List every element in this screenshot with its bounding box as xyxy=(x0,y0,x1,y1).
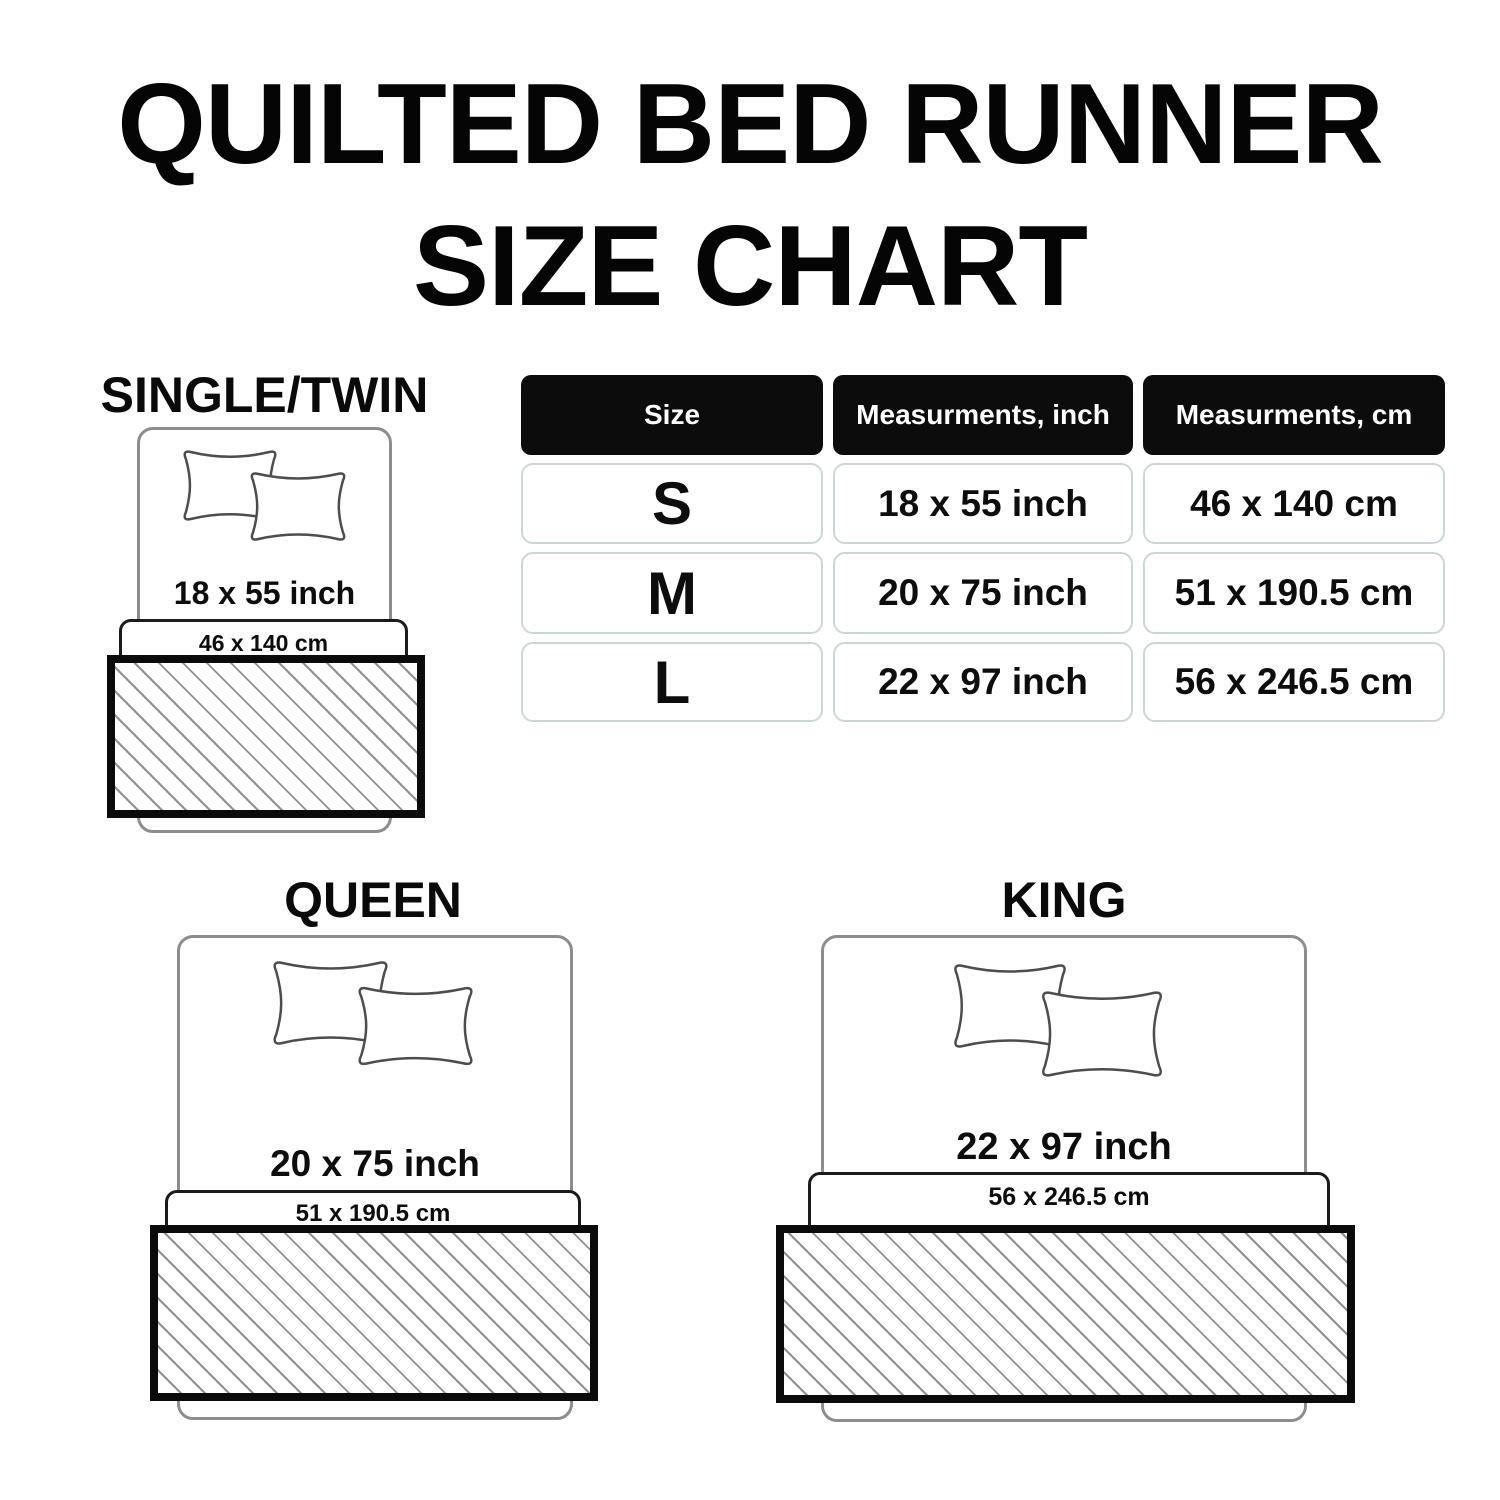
diagram-queen-label: QUEEN xyxy=(173,875,573,925)
table-cell-inch-m: 20 x 75 inch xyxy=(833,552,1133,634)
table-cell-inch-l: 22 x 97 inch xyxy=(833,642,1133,722)
table-cell-size-l: L xyxy=(521,642,823,722)
pillow-icon xyxy=(349,983,482,1069)
table-header-size: Size xyxy=(521,375,823,455)
page-title: QUILTED BED RUNNER SIZE CHART xyxy=(0,54,1500,338)
page-title-line-2: SIZE CHART xyxy=(0,196,1500,338)
table-header-cm: Measurments, cm xyxy=(1143,375,1445,455)
table-cell-size-m: M xyxy=(521,552,823,634)
diagram-king-label: KING xyxy=(864,875,1264,925)
size-table: Size Measurments, inch Measurments, cm S… xyxy=(521,375,1445,722)
runner-size-cm-label: 46 x 140 cm xyxy=(199,630,328,656)
pillow-icon xyxy=(243,469,353,544)
table-cell-inch-s: 18 x 55 inch xyxy=(833,463,1133,544)
size-chart-infographic: QUILTED BED RUNNER SIZE CHART Size Measu… xyxy=(0,0,1500,1500)
runner-size-inch-label: 20 x 75 inch xyxy=(177,1145,573,1182)
runner-size-inch-label: 18 x 55 inch xyxy=(137,577,392,609)
runner-size-inch-label: 22 x 97 inch xyxy=(821,1128,1307,1166)
table-cell-cm-s: 46 x 140 cm xyxy=(1143,463,1445,544)
runner-size-cm-label: 56 x 246.5 cm xyxy=(988,1183,1149,1211)
diagram-single-twin-label: SINGLE/TWIN xyxy=(87,370,442,420)
table-cell-cm-l: 56 x 246.5 cm xyxy=(1143,642,1445,722)
quilted-runner-hatched xyxy=(776,1225,1355,1403)
quilted-runner-hatched xyxy=(107,655,425,818)
quilted-runner-hatched xyxy=(150,1225,598,1401)
table-cell-cm-m: 51 x 190.5 cm xyxy=(1143,552,1445,634)
runner-size-cm-label: 51 x 190.5 cm xyxy=(296,1200,451,1227)
pillow-icon xyxy=(1032,987,1172,1081)
table-cell-size-s: S xyxy=(521,463,823,544)
page-title-line-1: QUILTED BED RUNNER xyxy=(0,54,1500,196)
table-header-inch: Measurments, inch xyxy=(833,375,1133,455)
